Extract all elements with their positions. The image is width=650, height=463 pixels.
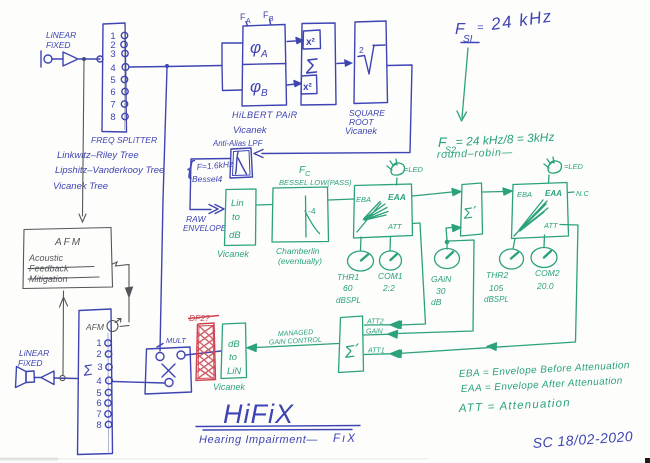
svg-text:COM2: COM2 (535, 268, 560, 278)
svg-text:5: 5 (110, 75, 115, 86)
svg-text:x²: x² (306, 37, 316, 48)
svg-text:7: 7 (110, 100, 115, 111)
svg-text:Σ´: Σ´ (461, 204, 478, 223)
svg-text:dB: dB (228, 339, 240, 350)
svg-text:Linkwitz–Riley Tree: Linkwitz–Riley Tree (57, 150, 139, 161)
svg-text:3: 3 (110, 49, 115, 60)
svg-text:RAW: RAW (186, 214, 207, 224)
svg-text:Chamberlin: Chamberlin (276, 246, 320, 256)
svg-text:20.0: 20.0 (536, 281, 554, 291)
svg-text:LiNEAR: LiNEAR (46, 30, 76, 40)
svg-text:4: 4 (96, 376, 101, 387)
svg-text:FiXED: FiXED (18, 358, 43, 368)
svg-text:EBA: EBA (356, 195, 371, 204)
svg-text:3: 3 (97, 362, 102, 373)
svg-text:EAA: EAA (545, 189, 562, 198)
svg-text:HiFiX: HiFiX (223, 399, 294, 429)
svg-text:φ: φ (250, 77, 261, 96)
svg-text:Σ´: Σ´ (342, 341, 362, 362)
svg-text:-4: -4 (308, 206, 316, 216)
svg-text:2: 2 (359, 45, 364, 55)
svg-text:Anti-Alias LPF: Anti-Alias LPF (212, 139, 264, 148)
svg-text:4: 4 (110, 63, 115, 74)
svg-text:=: = (477, 22, 484, 34)
svg-text:2: 2 (96, 349, 101, 360)
svg-text:φ: φ (250, 38, 261, 57)
svg-text:FiXED: FiXED (46, 40, 71, 50)
svg-text:FıX: FıX (333, 433, 357, 445)
svg-text:ATT: ATT (543, 221, 559, 230)
svg-text:ATT2: ATT2 (366, 319, 384, 326)
svg-text:ENVELOPE: ENVELOPE (183, 224, 227, 233)
svg-text:COM1: COM1 (378, 271, 403, 281)
svg-text:B: B (261, 88, 268, 99)
svg-text:Hearing Impairment—: Hearing Impairment— (199, 434, 318, 446)
svg-text:6: 6 (110, 87, 115, 98)
svg-text:dBSPL: dBSPL (336, 296, 361, 305)
svg-text:EAA: EAA (388, 192, 406, 202)
svg-text:LiN: LiN (227, 366, 241, 377)
svg-text:30: 30 (436, 286, 446, 296)
svg-text:Vicanek: Vicanek (345, 126, 377, 136)
svg-text:C: C (305, 169, 311, 178)
svg-text:dBSPL: dBSPL (484, 295, 509, 304)
svg-text:to: to (232, 212, 240, 223)
svg-text:dB: dB (229, 230, 241, 241)
svg-text:LiNEAR: LiNEAR (19, 348, 49, 358)
svg-text:Lipshitz–Vanderkooy Tree: Lipshitz–Vanderkooy Tree (55, 165, 164, 176)
svg-text:to: to (229, 352, 237, 363)
svg-text:FREQ SPLiTTER: FREQ SPLiTTER (91, 135, 157, 145)
svg-text:7: 7 (96, 409, 101, 420)
svg-text:AFM: AFM (85, 322, 105, 332)
svg-text:8: 8 (110, 112, 115, 123)
svg-text:60: 60 (343, 283, 353, 293)
svg-text:THR2: THR2 (486, 270, 508, 280)
svg-text:8: 8 (96, 420, 101, 431)
svg-text:B: B (269, 16, 274, 23)
svg-text:(eventually): (eventually) (278, 256, 322, 266)
svg-text:A: A (260, 49, 268, 60)
svg-text:dB: dB (431, 297, 442, 307)
svg-text:Vicanek: Vicanek (233, 125, 268, 136)
svg-text:MULT: MULT (166, 336, 187, 345)
svg-text:THR1: THR1 (337, 272, 359, 282)
svg-text:Vicanek: Vicanek (217, 249, 249, 259)
svg-text:105: 105 (489, 283, 503, 293)
svg-text:N.C: N.C (576, 189, 590, 198)
svg-text:Bessel4: Bessel4 (192, 174, 223, 184)
svg-text:=LED: =LED (564, 162, 584, 171)
svg-text:Lin: Lin (231, 198, 244, 209)
svg-text:1: 1 (96, 338, 101, 349)
svg-text:2:2: 2:2 (382, 283, 395, 293)
svg-text:Vicanek Tree: Vicanek Tree (53, 181, 108, 192)
svg-text:AFM: AFM (54, 237, 82, 248)
svg-text:6: 6 (96, 398, 101, 409)
svg-text:EBA: EBA (517, 190, 532, 199)
svg-text:ATT1: ATT1 (367, 348, 385, 355)
svg-text:Acoustic: Acoustic (28, 253, 64, 263)
svg-text:GAiN: GAiN (431, 274, 452, 284)
svg-text:SI: SI (463, 34, 473, 45)
svg-text:Vicanek: Vicanek (213, 382, 245, 392)
svg-text:x²: x² (303, 82, 313, 93)
svg-text:ATT: ATT (387, 222, 403, 231)
svg-text:A: A (246, 18, 251, 25)
svg-text:BESSEL LOW(PASS): BESSEL LOW(PASS) (279, 178, 352, 187)
svg-text:HiLBERT PAiR: HiLBERT PAiR (232, 110, 298, 120)
svg-text:GAiN: GAiN (366, 329, 384, 336)
svg-text:=LED: =LED (404, 165, 424, 174)
